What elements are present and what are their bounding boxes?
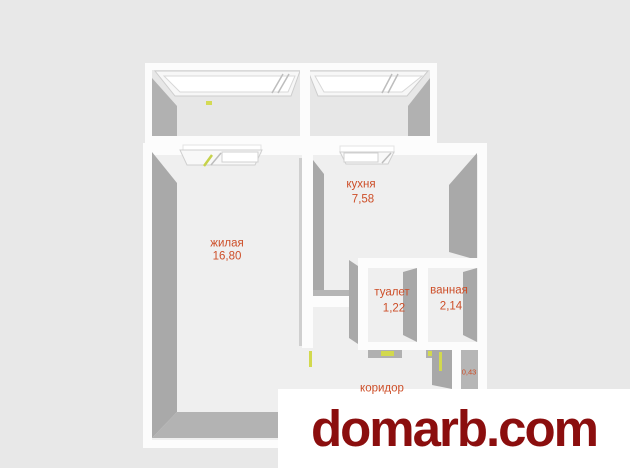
balcony-door-threshold-icon — [206, 101, 212, 105]
room-area-closet: 0,43 — [462, 368, 477, 376]
living-door-marker-icon — [309, 351, 312, 367]
room-area-bathroom: 2,14 — [440, 301, 462, 313]
sanitary-left-wall — [358, 258, 368, 350]
watermark: domarb.com — [278, 389, 630, 468]
room-area-kitchen: 7,58 — [352, 194, 374, 206]
balcony-window-left-icon — [155, 71, 300, 96]
toilet-door-marker-icon — [381, 351, 394, 356]
closet-door-marker-icon — [439, 352, 442, 371]
closet-left-wall — [452, 348, 461, 389]
living-kitchen-wall — [302, 155, 313, 348]
watermark-text: domarb.com — [311, 403, 597, 454]
room-label-toilet: туалет — [374, 287, 409, 299]
toilet-bath-divider-wall — [417, 266, 428, 350]
balcony — [145, 63, 437, 150]
living-kitchen-wall-edge — [299, 158, 302, 346]
room-label-bathroom: ванная — [430, 285, 468, 297]
living-kitchen-wall-face — [313, 160, 324, 296]
living-left-wall-face — [152, 152, 177, 438]
room-area-living: 16,80 — [213, 251, 242, 263]
bathroom-right-wall-face — [463, 268, 477, 342]
room-label-corridor: коридор — [360, 383, 404, 395]
living-window-icon — [180, 145, 262, 165]
floor-plan-image: жилая 16,80 кухня 7,58 туалет 1,22 ванна… — [0, 0, 630, 468]
balcony-window-right-icon — [308, 71, 428, 96]
kitchen-window-icon — [340, 146, 394, 164]
room-label-living: жилая — [210, 238, 243, 250]
sanitary-left-wall-face — [349, 260, 358, 344]
room-area-toilet: 1,22 — [383, 303, 405, 315]
balcony-divider-wall — [300, 70, 310, 143]
room-label-kitchen: кухня — [346, 179, 375, 191]
